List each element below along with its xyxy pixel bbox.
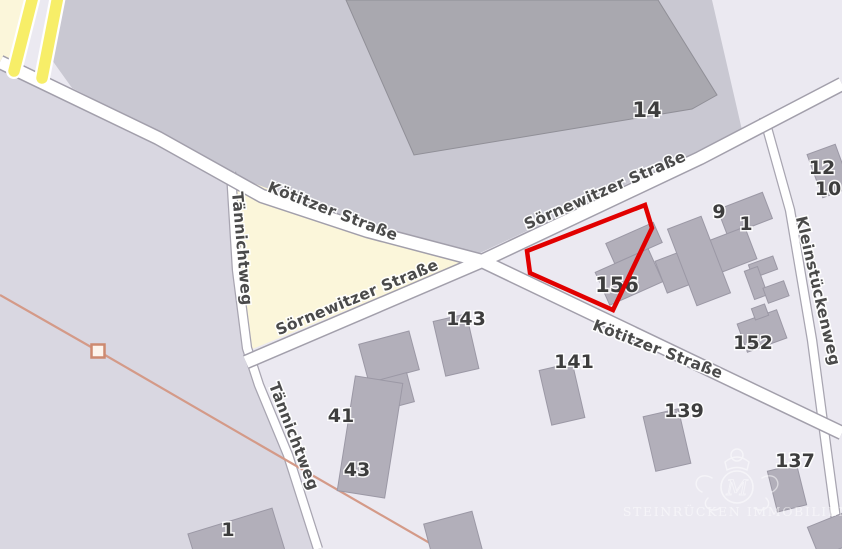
watermark-text: STEINRÜCKEN IMMOBILIEN xyxy=(623,503,842,519)
house-number-12: 12 xyxy=(809,157,835,179)
house-number-1-south: 1 xyxy=(221,519,234,541)
map-canvas[interactable]: Kötitzer Straße Sörnewitzer Straße Sörne… xyxy=(0,0,842,549)
house-number-143: 143 xyxy=(446,308,486,330)
house-number-139: 139 xyxy=(664,400,704,422)
watermark-monogram: M xyxy=(725,476,748,500)
house-number-156: 156 xyxy=(595,273,639,297)
house-number-137: 137 xyxy=(775,450,815,472)
house-number-9: 9 xyxy=(712,201,725,223)
boundary-node-marker xyxy=(92,345,105,358)
house-number-43: 43 xyxy=(344,459,370,481)
house-number-1-north: 1 xyxy=(739,213,752,235)
house-number-10: 10 xyxy=(815,178,841,200)
house-number-14: 14 xyxy=(632,98,661,122)
house-number-141: 141 xyxy=(554,351,594,373)
house-number-41: 41 xyxy=(328,405,354,427)
house-number-152: 152 xyxy=(733,332,773,354)
